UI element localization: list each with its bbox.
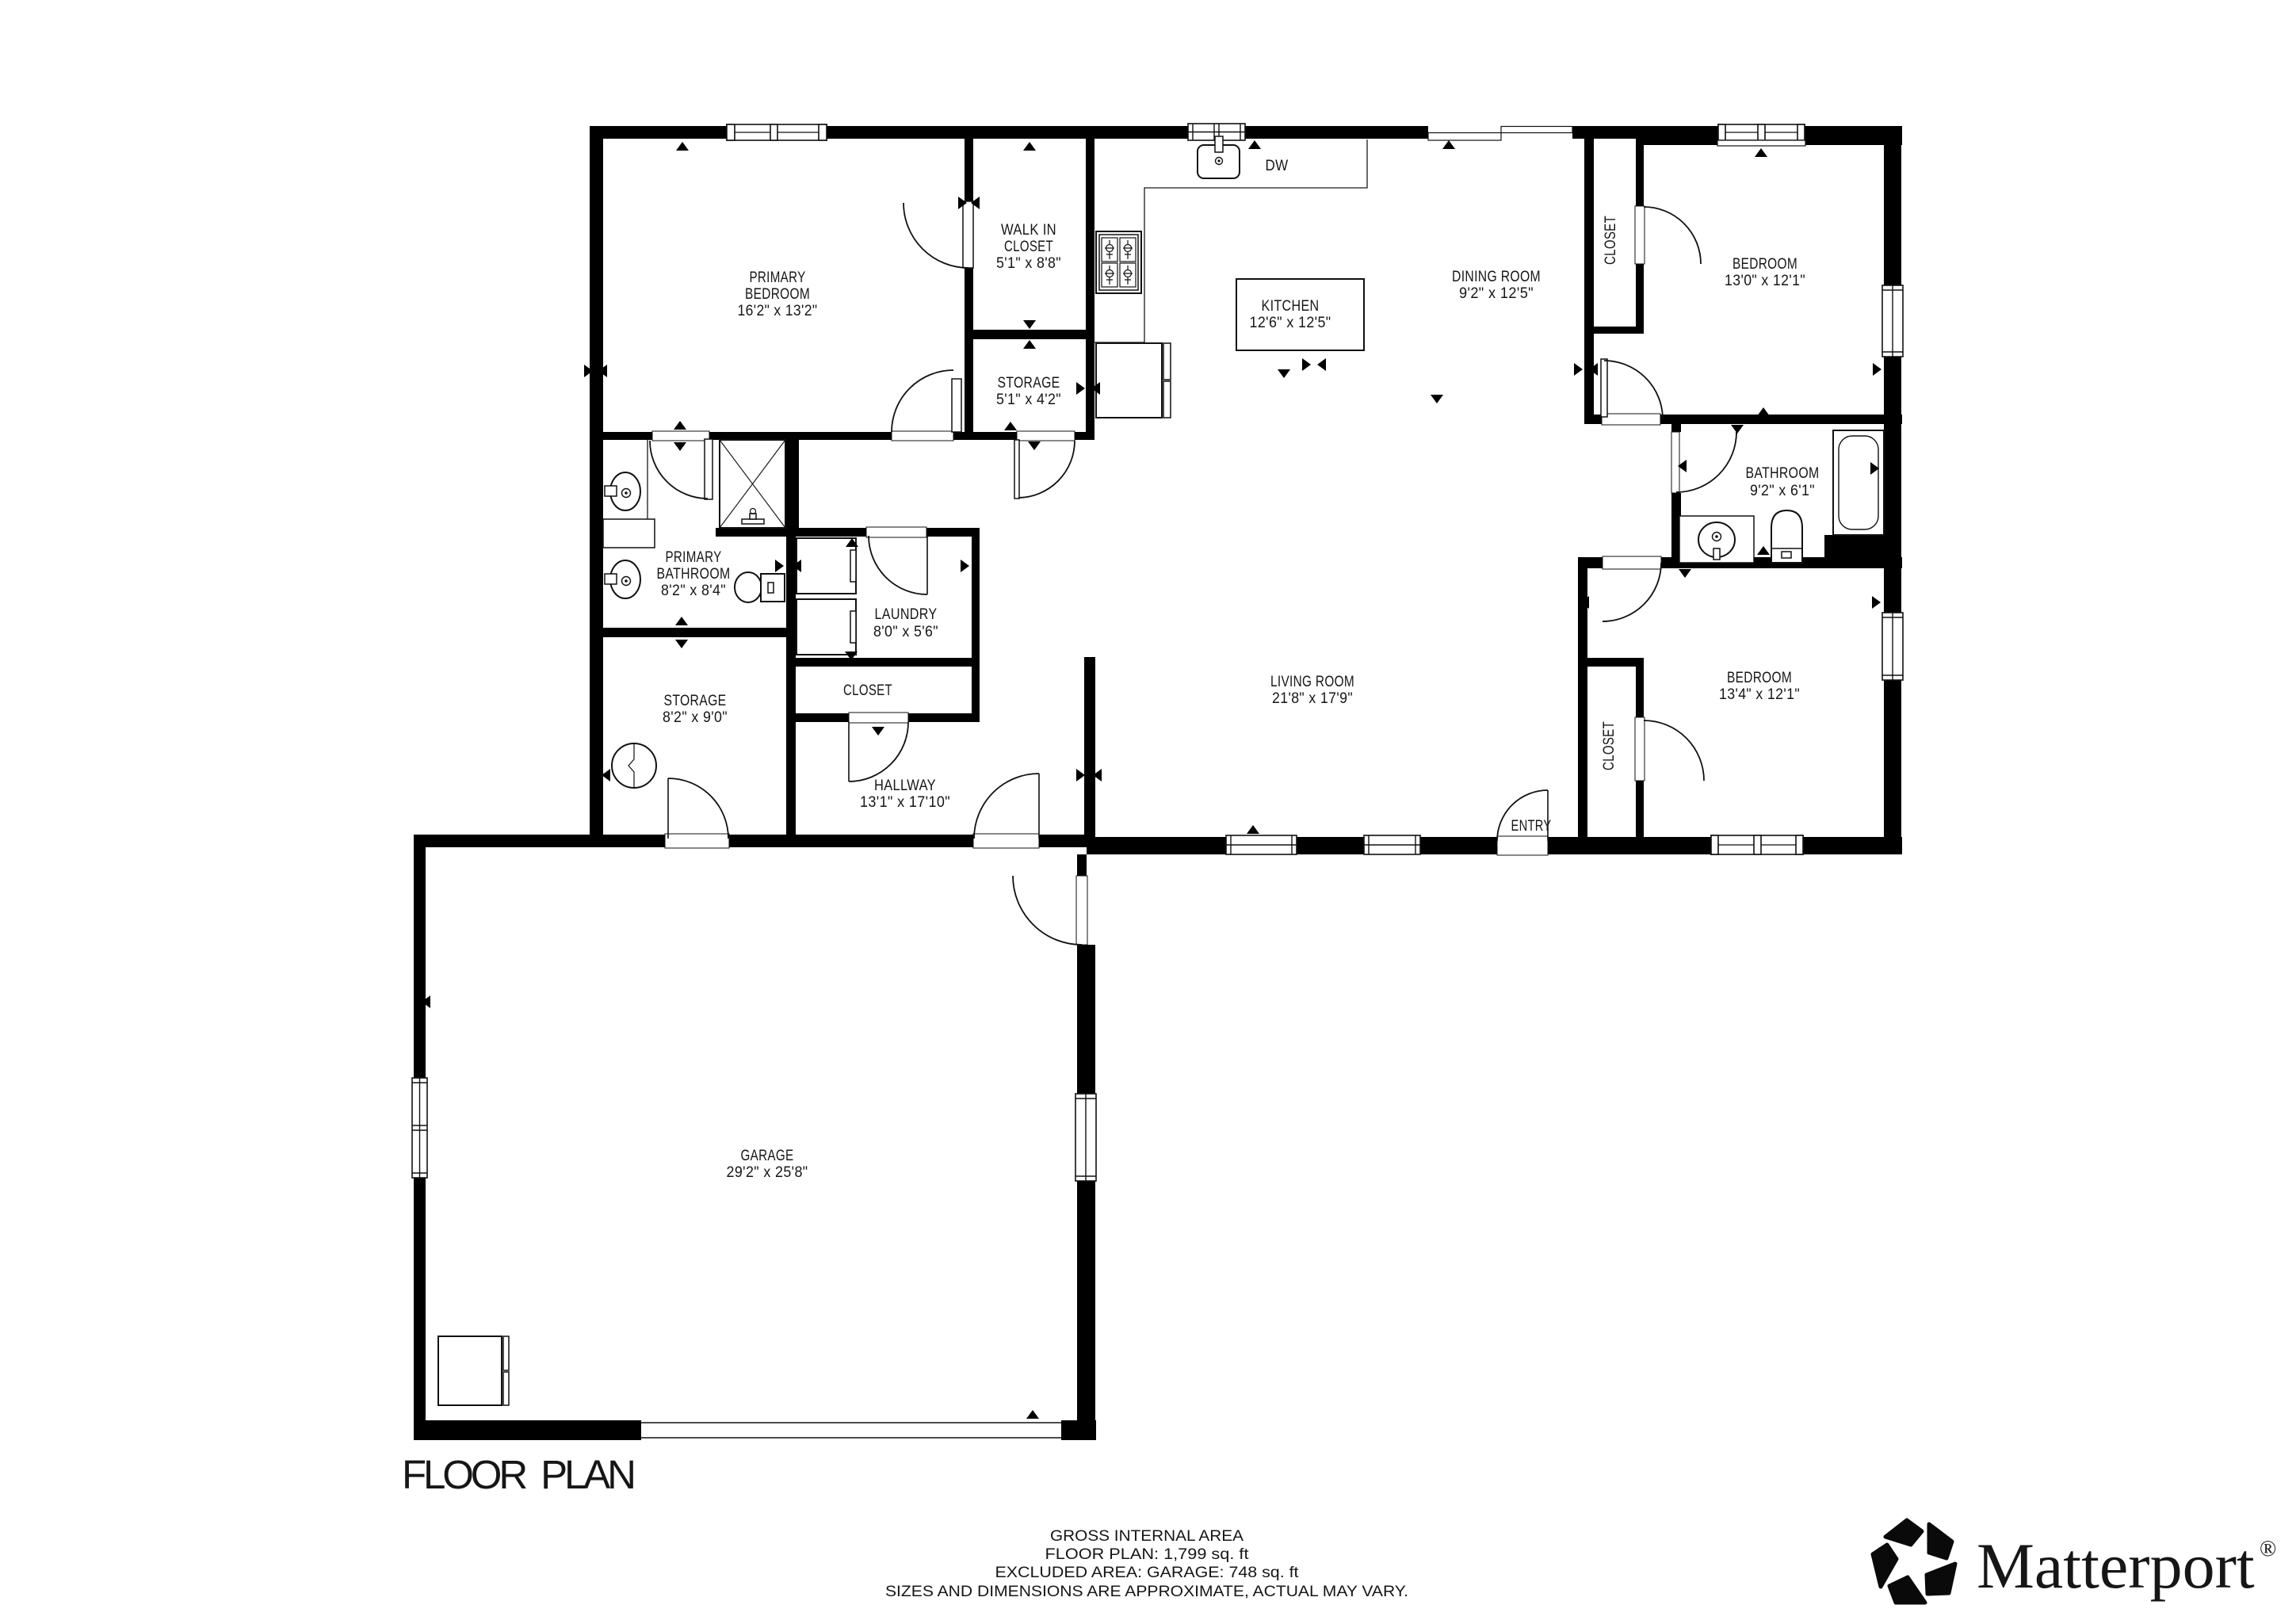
svg-text:CLOSET: CLOSET [1004, 239, 1053, 255]
svg-text:WALK IN: WALK IN [1001, 222, 1056, 239]
svg-text:FLOOR PLAN: 1,799 sq. ft: FLOOR PLAN: 1,799 sq. ft [1045, 1546, 1250, 1563]
svg-text:5'1" x 8'8": 5'1" x 8'8" [996, 255, 1061, 272]
svg-text:HALLWAY: HALLWAY [874, 778, 936, 794]
svg-text:8'0" x 5'6": 8'0" x 5'6" [873, 624, 938, 640]
svg-text:13'4" x 12'1": 13'4" x 12'1" [1719, 686, 1800, 703]
svg-text:ENTRY: ENTRY [1511, 818, 1552, 835]
svg-text:GROSS INTERNAL AREA: GROSS INTERNAL AREA [1050, 1527, 1244, 1545]
svg-text:CLOSET: CLOSET [843, 682, 892, 699]
svg-text:9'2" x 12'5": 9'2" x 12'5" [1459, 285, 1534, 302]
svg-text:STORAGE: STORAGE [998, 375, 1060, 392]
svg-text:SIZES AND DIMENSIONS ARE APPRO: SIZES AND DIMENSIONS ARE APPROXIMATE, AC… [885, 1583, 1408, 1600]
svg-text:Matterport: Matterport [1977, 1530, 2255, 1602]
svg-text:LIVING ROOM: LIVING ROOM [1270, 674, 1354, 690]
svg-text:21'8" x 17'9": 21'8" x 17'9" [1272, 690, 1353, 707]
svg-text:DW: DW [1266, 158, 1289, 174]
svg-text:LAUNDRY: LAUNDRY [875, 606, 938, 623]
svg-text:BEDROOM: BEDROOM [745, 286, 810, 303]
svg-text:13'1" x 17'10": 13'1" x 17'10" [860, 794, 950, 811]
svg-text:16'2" x 13'2": 16'2" x 13'2" [738, 303, 818, 319]
svg-text:9'2" x 6'1": 9'2" x 6'1" [1750, 483, 1815, 499]
svg-text:CLOSET: CLOSET [1603, 216, 1619, 265]
svg-text:BATHROOM: BATHROOM [1746, 465, 1820, 482]
svg-text:5'1" x 4'2": 5'1" x 4'2" [996, 392, 1061, 408]
svg-text:GARAGE: GARAGE [741, 1148, 794, 1164]
svg-text:8'2" x 8'4": 8'2" x 8'4" [661, 583, 726, 599]
svg-text:BATHROOM: BATHROOM [657, 566, 731, 583]
svg-text:DINING ROOM: DINING ROOM [1452, 269, 1541, 285]
svg-text:BEDROOM: BEDROOM [1733, 256, 1797, 273]
svg-text:BEDROOM: BEDROOM [1727, 670, 1792, 686]
svg-text:EXCLUDED AREA: GARAGE: 748 sq.: EXCLUDED AREA: GARAGE: 748 sq. ft [995, 1564, 1300, 1581]
svg-text:CLOSET: CLOSET [1601, 721, 1618, 770]
svg-text:13'0" x 12'1": 13'0" x 12'1" [1725, 273, 1805, 289]
svg-text:KITCHEN: KITCHEN [1262, 298, 1320, 315]
svg-text:FLOOR PLAN: FLOOR PLAN [402, 1452, 636, 1497]
svg-text:8'2" x 9'0": 8'2" x 9'0" [663, 709, 728, 726]
svg-text:PRIMARY: PRIMARY [666, 549, 722, 566]
svg-text:12'6" x 12'5": 12'6" x 12'5" [1250, 315, 1331, 331]
svg-text:29'2" x 25'8": 29'2" x 25'8" [727, 1164, 808, 1181]
svg-text:STORAGE: STORAGE [664, 693, 727, 709]
svg-text:®: ® [2260, 1537, 2276, 1561]
svg-text:PRIMARY: PRIMARY [750, 269, 806, 286]
